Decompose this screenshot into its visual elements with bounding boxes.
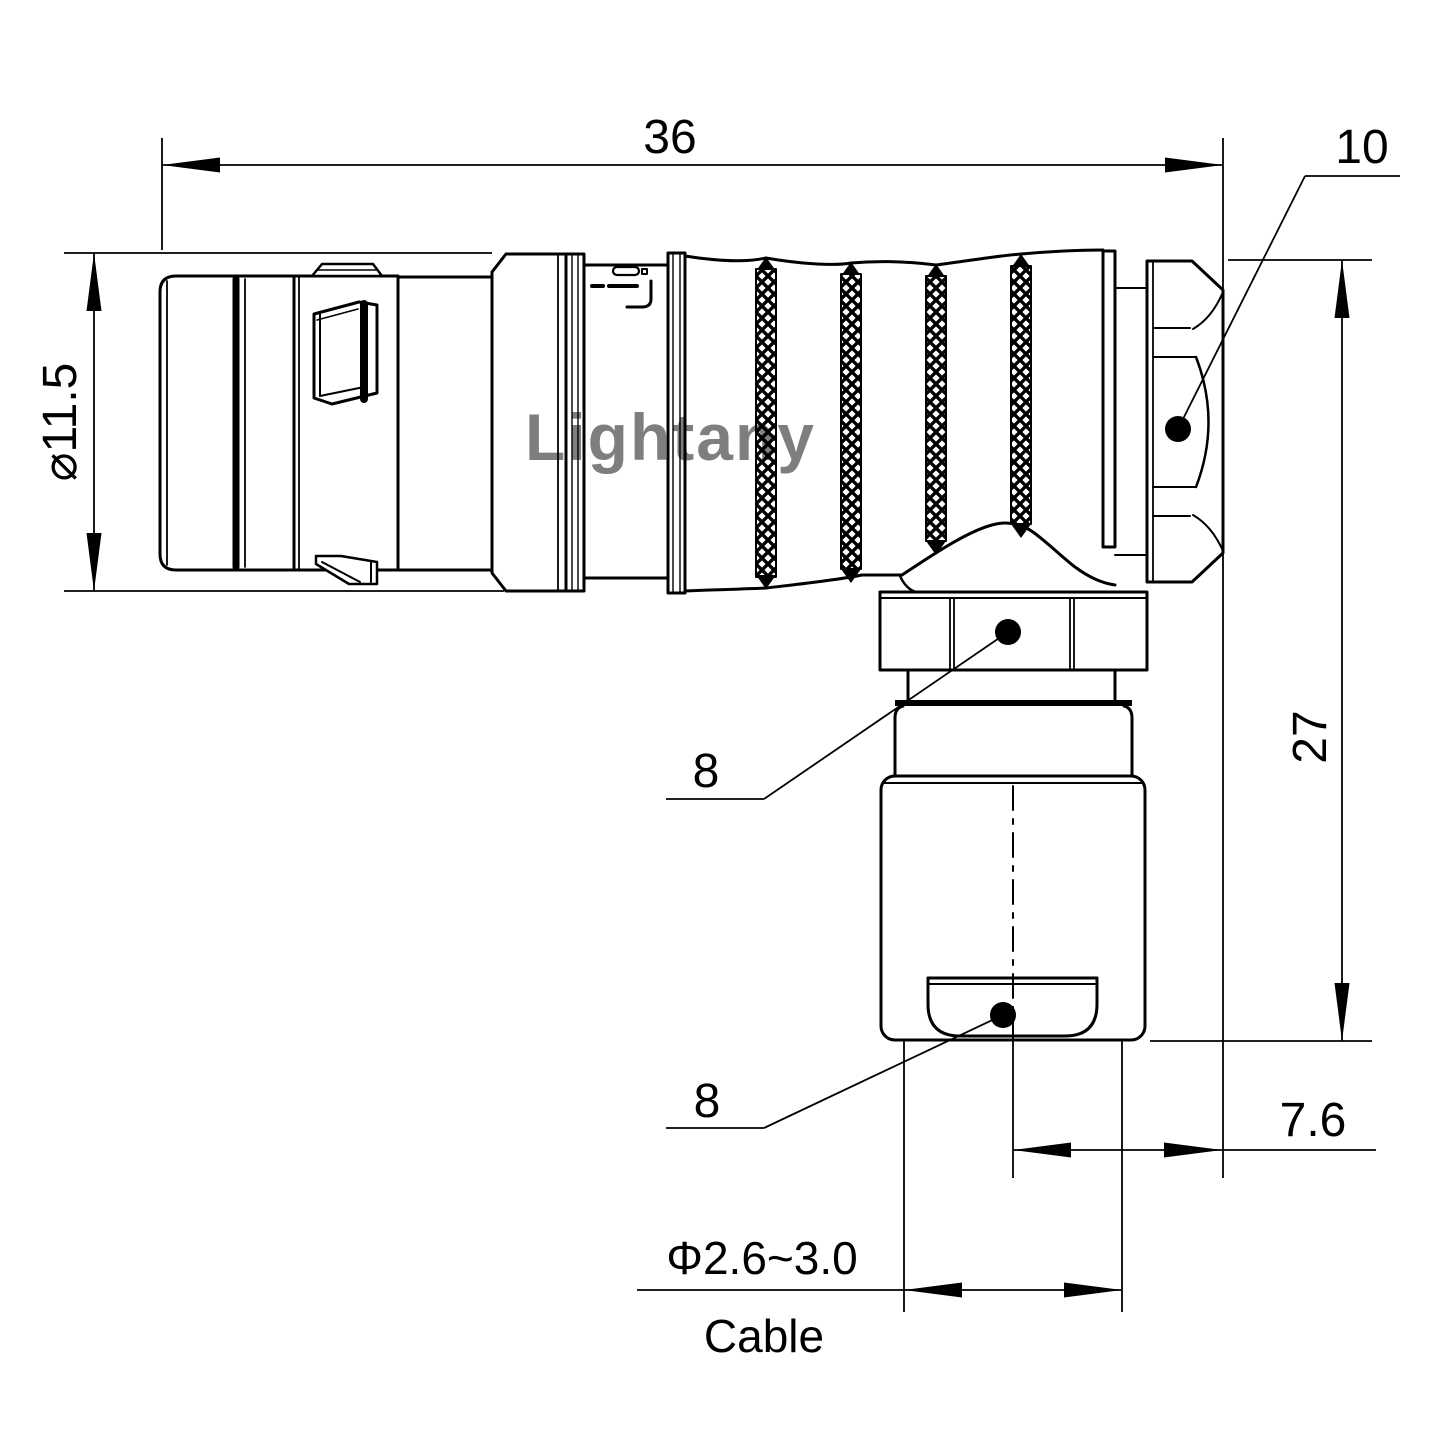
arrow-up-icon	[1335, 260, 1350, 318]
knurl-band	[1011, 254, 1031, 538]
knurl-band	[841, 262, 861, 583]
dim-label-gland-hex: 8	[693, 745, 720, 798]
leader-dot	[995, 619, 1021, 645]
coupling-ring	[398, 277, 492, 570]
dim-label-front-diameter: ⌀11.5	[34, 363, 87, 482]
dim-label-cable: Cable	[704, 1310, 824, 1362]
dim-label-height: 27	[1284, 710, 1337, 763]
dim-label-bushing-hex: 8	[694, 1075, 721, 1128]
elbow-left-fillet	[900, 576, 916, 592]
arrow-left-icon	[1013, 1143, 1071, 1158]
dim-label-rear-offset: 7.6	[1280, 1094, 1347, 1147]
arrow-right-icon	[1165, 158, 1223, 173]
leader-dot	[1165, 416, 1191, 442]
arrow-left-icon	[904, 1283, 962, 1298]
arrow-up-icon	[87, 253, 102, 311]
watermark-text: Lightany	[525, 400, 816, 474]
bayonet-section	[294, 264, 492, 584]
dim-label-rear-hex: 10	[1335, 121, 1388, 174]
rear-plate	[1103, 251, 1147, 555]
arrow-down-icon	[1335, 983, 1350, 1041]
dim-label-overall-length: 36	[643, 111, 696, 164]
bayonet-window	[314, 302, 377, 404]
connector-body	[160, 250, 1223, 1040]
technical-drawing-page: 36 ⌀11.5 27 7.6	[0, 0, 1440, 1440]
bayonet-tab	[316, 556, 377, 584]
arrow-right-icon	[1164, 1143, 1222, 1158]
arrow-right-icon	[1064, 1283, 1122, 1298]
connector-dimension-drawing: 36 ⌀11.5 27 7.6	[0, 0, 1440, 1440]
arrow-down-icon	[87, 533, 102, 591]
front-sleeve	[160, 276, 294, 570]
arrow-left-icon	[162, 158, 220, 173]
knurl-band	[926, 264, 946, 555]
dim-label-cable-range: Φ2.6~3.0	[666, 1232, 857, 1284]
leader-dot	[990, 1002, 1016, 1028]
dim-rear-offset: 7.6	[1013, 1040, 1376, 1178]
